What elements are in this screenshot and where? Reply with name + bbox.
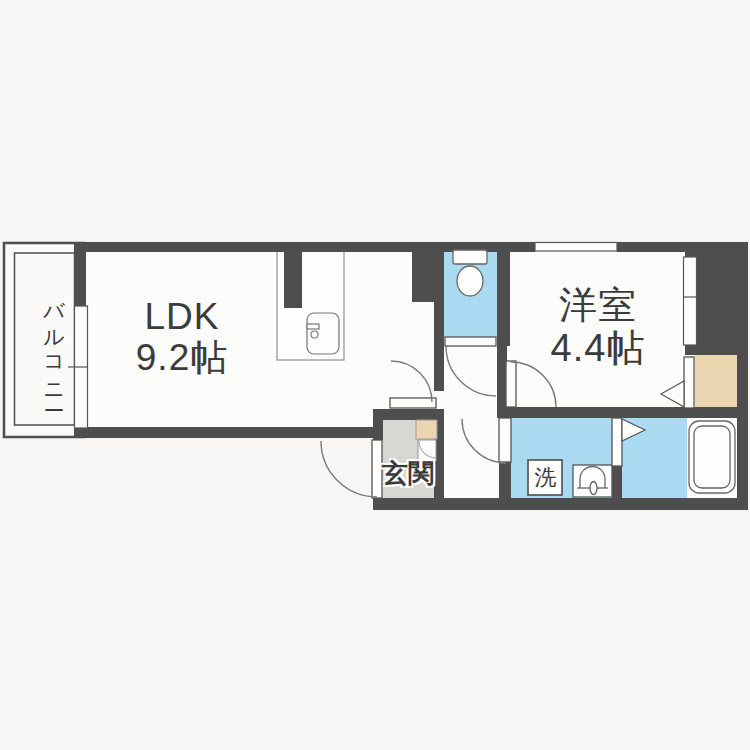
washbasin-icon: [573, 465, 612, 497]
western-room-name: 洋室: [506, 284, 690, 327]
entrance-label: 玄関: [376, 459, 440, 488]
bathroom-door-panel: [612, 418, 622, 466]
entry-door-arc: [321, 441, 377, 497]
window-top: [535, 243, 617, 252]
balcony-label: バルコニー: [20, 262, 66, 427]
bathtub-icon: [689, 421, 735, 493]
kitchen-sink-icon: [307, 313, 339, 354]
laundry-label: 洗: [529, 466, 562, 491]
ldk-area: 9.2帖: [92, 337, 272, 378]
western-room-label: 洋室 4.4帖: [506, 284, 690, 369]
ldk-door-leaf: [390, 398, 436, 408]
western-room-area: 4.4帖: [506, 327, 690, 370]
closet-floor: [695, 353, 737, 408]
shoe-cabinet: [416, 420, 437, 461]
ldk-label: LDK 9.2帖: [92, 296, 272, 379]
ldk-name: LDK: [92, 296, 272, 337]
washroom-door-leaf: [499, 418, 511, 462]
toilet-door-leaf: [445, 337, 496, 346]
floorplan-canvas: バルコニー LDK 9.2帖 洋室 4.4帖 玄関 洗: [0, 0, 750, 750]
